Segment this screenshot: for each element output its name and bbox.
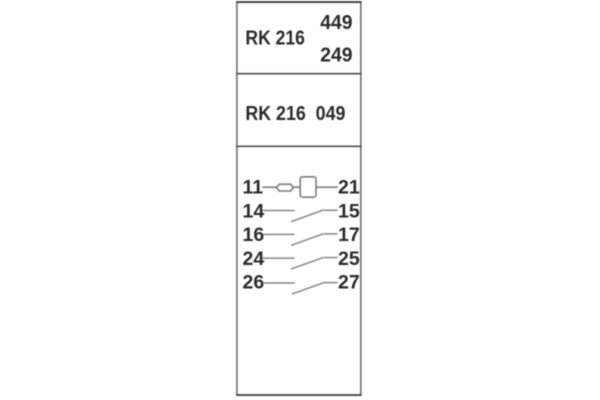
svg-text:17: 17 [338,224,360,246]
svg-text:25: 25 [338,248,360,270]
svg-text:249: 249 [320,43,352,66]
svg-text:11: 11 [243,177,264,199]
svg-text:24: 24 [243,248,265,270]
svg-text:27: 27 [338,272,360,294]
svg-text:21: 21 [338,177,360,199]
svg-text:RK 216 049: RK 216 049 [245,102,345,125]
svg-text:449: 449 [320,11,352,34]
svg-text:RK 216: RK 216 [245,27,305,50]
svg-text:26: 26 [243,272,265,294]
svg-text:14: 14 [243,200,265,222]
svg-text:16: 16 [243,224,265,246]
svg-text:15: 15 [338,200,360,222]
